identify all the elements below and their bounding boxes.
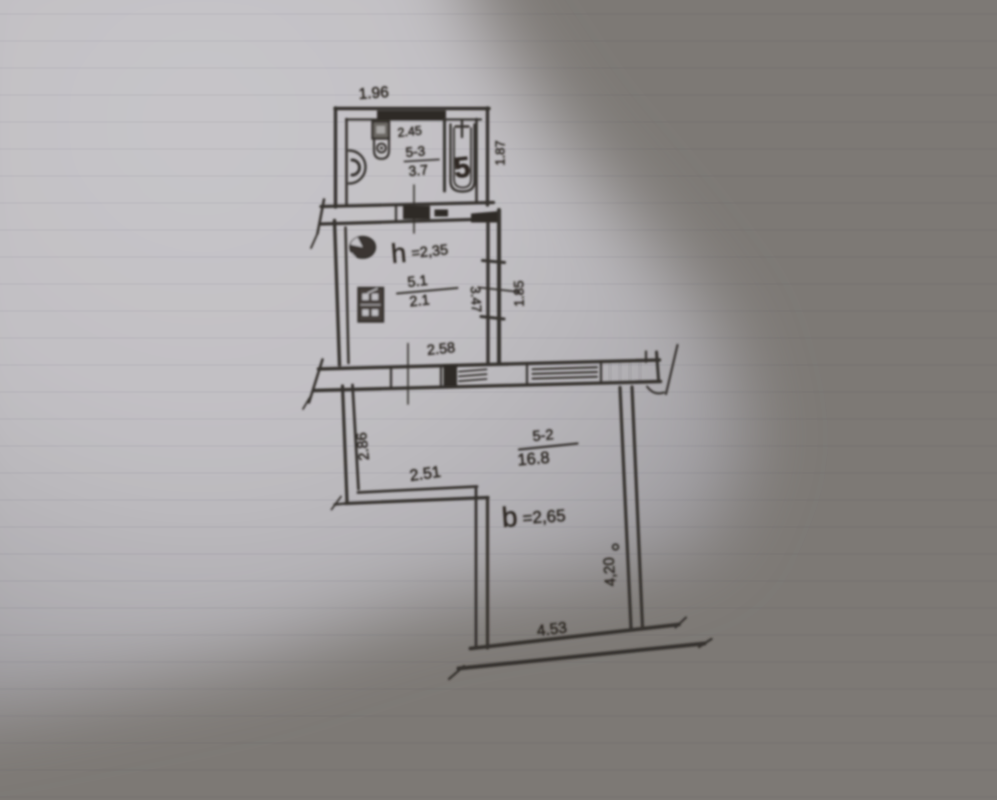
svg-text:1.85: 1.85 (511, 280, 526, 307)
svg-text:4,20: 4,20 (601, 557, 620, 587)
svg-text:5-2: 5-2 (532, 427, 554, 445)
svg-text:b: b (501, 501, 519, 533)
svg-text:1.87: 1.87 (493, 140, 508, 165)
svg-text:5: 5 (452, 151, 471, 185)
svg-text:=2,65: =2,65 (522, 506, 566, 528)
svg-text:1.96: 1.96 (358, 84, 389, 103)
svg-text:16.8: 16.8 (517, 449, 551, 470)
svg-text:5.1: 5.1 (407, 273, 429, 291)
svg-text:3.7: 3.7 (408, 161, 429, 179)
svg-text:3.47: 3.47 (468, 286, 484, 313)
svg-text:2.1: 2.1 (409, 292, 431, 310)
svg-text:2.58: 2.58 (426, 340, 456, 359)
svg-text:5-3: 5-3 (405, 143, 426, 160)
svg-text:h: h (390, 238, 408, 269)
svg-text:2.45: 2.45 (397, 124, 423, 140)
svg-text:2.86: 2.86 (354, 432, 373, 462)
